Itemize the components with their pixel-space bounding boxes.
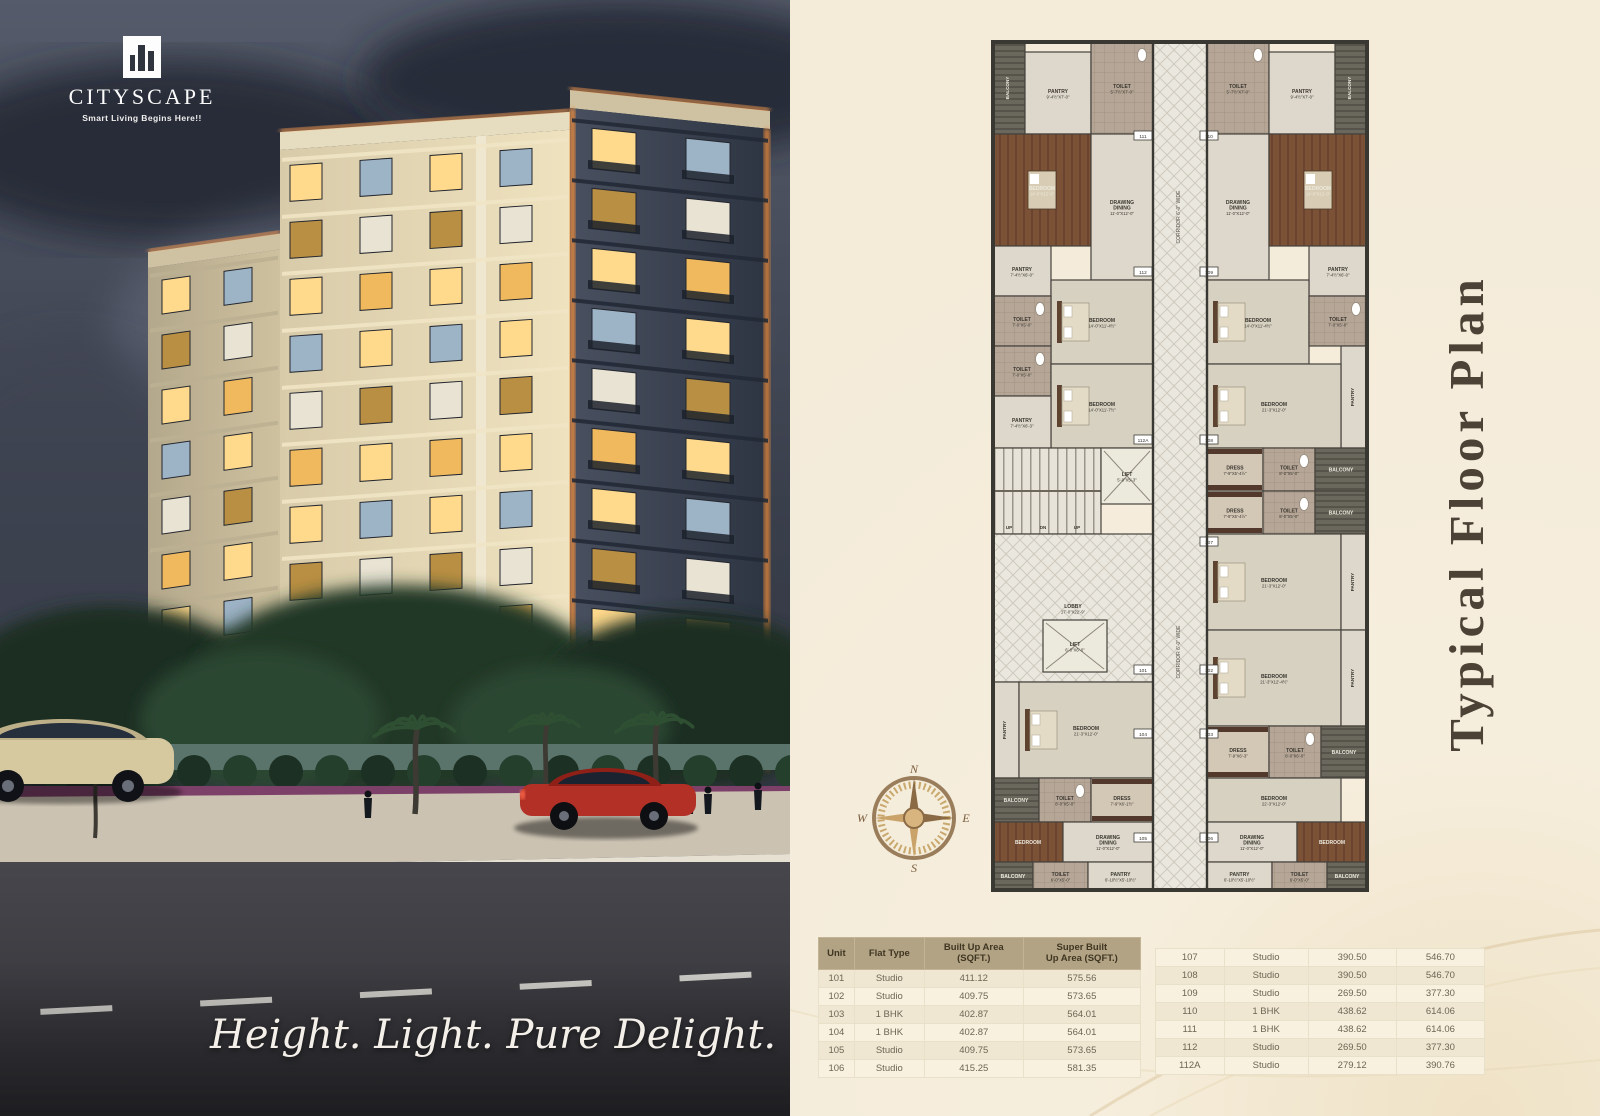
building-window	[290, 505, 322, 543]
brand-tagline: Smart Living Begins Here!!	[42, 113, 242, 123]
building-window	[500, 376, 532, 414]
table-row: 101Studio411.12575.56	[819, 969, 1141, 987]
building-window	[290, 448, 322, 486]
unit-area-table-left: UnitFlat TypeBuilt Up Area (SQFT.)Super …	[818, 937, 1141, 1078]
table-cell: 109	[1156, 985, 1225, 1003]
building-window	[290, 334, 322, 372]
building-window	[162, 496, 190, 534]
svg-text:BALCONY: BALCONY	[1332, 750, 1357, 756]
svg-text:104: 104	[1139, 732, 1147, 738]
building-window	[290, 277, 322, 315]
table-header: Flat Type	[854, 938, 924, 970]
svg-text:BEDROOM: BEDROOM	[1319, 840, 1345, 846]
table-cell: 564.01	[1023, 1005, 1140, 1023]
svg-text:PANTRY: PANTRY	[1350, 388, 1355, 406]
table-cell: 402.87	[924, 1005, 1023, 1023]
compass-s: S	[911, 861, 917, 874]
svg-text:6'-0"X5'-0": 6'-0"X5'-0"	[1290, 878, 1310, 883]
svg-text:UP: UP	[1074, 525, 1080, 530]
svg-text:7'-9"X6'-3": 7'-9"X6'-3"	[1228, 754, 1248, 759]
unit-area-table-right: 107Studio390.50546.70108Studio390.50546.…	[1155, 948, 1485, 1075]
svg-text:14'-0"X12'-0": 14'-0"X12'-0"	[1306, 192, 1331, 197]
svg-text:14'-0"X11'-4½": 14'-0"X11'-4½"	[1244, 324, 1272, 329]
brand-name: CITYSCAPE	[42, 84, 242, 110]
table-cell: 377.30	[1396, 985, 1484, 1003]
table-header: Built Up Area (SQFT.)	[924, 938, 1023, 970]
svg-text:BALCONY: BALCONY	[1001, 874, 1026, 880]
corridor-label: CORRIDOR 6'-0" WIDE	[1176, 625, 1182, 679]
table-cell: 411.12	[924, 969, 1023, 987]
table-cell: 546.70	[1396, 949, 1484, 967]
building-window	[360, 500, 392, 538]
building-window	[290, 391, 322, 429]
plan-title: Typical Floor Plan	[1438, 275, 1495, 752]
svg-text:14'-0"X11'-7½": 14'-0"X11'-7½"	[1088, 408, 1116, 413]
svg-text:UP: UP	[1006, 525, 1012, 530]
table-cell: 409.75	[924, 987, 1023, 1005]
brochure-page: CITYSCAPE Smart Living Begins Here!! Hei…	[0, 0, 1600, 1116]
building-window	[224, 322, 252, 360]
table-cell: Studio	[1224, 1057, 1308, 1075]
table-cell: 409.75	[924, 1041, 1023, 1059]
table-cell: Studio	[854, 1041, 924, 1059]
table-cell: Studio	[1224, 1039, 1308, 1057]
svg-text:7'-9"X5'-4½": 7'-9"X5'-4½"	[1224, 471, 1247, 476]
compass-n: N	[909, 762, 919, 776]
svg-text:11'-0"X12'-0": 11'-0"X12'-0"	[1240, 846, 1264, 851]
svg-text:111: 111	[1139, 134, 1147, 140]
building-window	[500, 148, 532, 186]
table-cell: 1 BHK	[1224, 1003, 1308, 1021]
svg-text:PANTRY: PANTRY	[1350, 573, 1355, 591]
cityscape-logo-icon	[123, 36, 161, 78]
svg-text:7'-0"X5'-0": 7'-0"X5'-0"	[1012, 323, 1032, 328]
building-night-scene	[0, 0, 790, 1116]
svg-text:22'-3"X12'-0": 22'-3"X12'-0"	[1262, 802, 1287, 807]
svg-text:7'-9"X6'-1½": 7'-9"X6'-1½"	[1111, 802, 1134, 807]
svg-text:8'-0"X5'-0": 8'-0"X5'-0"	[1279, 471, 1299, 476]
table-cell: 575.56	[1023, 969, 1140, 987]
svg-text:14'-0"X12'-0": 14'-0"X12'-0"	[1030, 192, 1055, 197]
table-row: 112Studio269.50377.30	[1156, 1039, 1485, 1057]
svg-text:101: 101	[1139, 668, 1147, 674]
table-cell: 102	[819, 987, 855, 1005]
building-window	[430, 324, 462, 362]
table-row: 112AStudio279.12390.76	[1156, 1057, 1485, 1075]
table-cell: Studio	[1224, 967, 1308, 985]
svg-text:7'-4½"X6'-0": 7'-4½"X6'-0"	[1011, 273, 1034, 278]
svg-text:9'-4½"X7'-0": 9'-4½"X7'-0"	[1291, 95, 1314, 100]
table-cell: 415.25	[924, 1059, 1023, 1077]
table-cell: 390.50	[1308, 967, 1396, 985]
table-cell: 438.62	[1308, 1003, 1396, 1021]
compass-rose: N S W E	[858, 762, 970, 874]
table-cell: 101	[819, 969, 855, 987]
svg-text:DN: DN	[1040, 525, 1047, 530]
building-window	[162, 331, 190, 369]
table-cell: 546.70	[1396, 967, 1484, 985]
building-window	[500, 205, 532, 243]
svg-text:5'-7½"X7'-0": 5'-7½"X7'-0"	[1227, 90, 1250, 95]
building-window	[224, 432, 252, 470]
building-window	[500, 547, 532, 585]
table-cell: 1 BHK	[854, 1005, 924, 1023]
table-cell: 112A	[1156, 1057, 1225, 1075]
table-cell: 1 BHK	[854, 1023, 924, 1041]
table-row: 105Studio409.75573.65	[819, 1041, 1141, 1059]
building-window	[224, 267, 252, 305]
building-window	[430, 495, 462, 533]
svg-text:6'-10½"X5'-10½": 6'-10½"X5'-10½"	[1105, 878, 1137, 883]
compass-w: W	[858, 811, 868, 825]
building-window	[500, 433, 532, 471]
table-cell: 112	[1156, 1039, 1225, 1057]
table-cell: Studio	[854, 969, 924, 987]
table-cell: 614.06	[1396, 1003, 1484, 1021]
table-row: 106Studio415.25581.35	[819, 1059, 1141, 1077]
table-row: 108Studio390.50546.70	[1156, 967, 1485, 985]
svg-text:7'-4½"X6'-0": 7'-4½"X6'-0"	[1327, 273, 1350, 278]
table-row: 109Studio269.50377.30	[1156, 985, 1485, 1003]
table-cell: Studio	[854, 1059, 924, 1077]
table-cell: 390.76	[1396, 1057, 1484, 1075]
table-cell: 614.06	[1396, 1021, 1484, 1039]
svg-text:11'-0"X12'-0": 11'-0"X12'-0"	[1096, 846, 1120, 851]
svg-text:BALCONY: BALCONY	[1335, 874, 1360, 880]
plan-room-stair: UPDNUP	[993, 448, 1101, 534]
table-cell: 104	[819, 1023, 855, 1041]
svg-text:11'-0"X12'-0": 11'-0"X12'-0"	[1226, 211, 1250, 216]
table-cell: 111	[1156, 1021, 1225, 1039]
building-window	[360, 386, 392, 424]
table-cell: 269.50	[1308, 985, 1396, 1003]
building-window	[430, 438, 462, 476]
building-window	[430, 552, 462, 590]
typical-floor-plan: BALCONYPANTRY9'-4½"X7'-0"TOILET5'-7½"X7'…	[985, 22, 1375, 894]
svg-text:PANTRY: PANTRY	[1350, 669, 1355, 687]
building-window	[290, 220, 322, 258]
table-cell: 106	[819, 1059, 855, 1077]
svg-text:6'-0"X6'-0": 6'-0"X6'-0"	[1065, 648, 1085, 653]
table-cell: 390.50	[1308, 949, 1396, 967]
svg-text:9'-4½"X7'-0": 9'-4½"X7'-0"	[1047, 95, 1070, 100]
building-render-panel: CITYSCAPE Smart Living Begins Here!! Hei…	[0, 0, 790, 1116]
building-window	[360, 329, 392, 367]
svg-text:8'-0"X5'-0": 8'-0"X5'-0"	[1055, 802, 1075, 807]
svg-text:BALCONY: BALCONY	[1005, 77, 1010, 100]
table-cell: 269.50	[1308, 1039, 1396, 1057]
table-cell: 402.87	[924, 1023, 1023, 1041]
pedestrian	[364, 791, 372, 819]
building-window	[224, 542, 252, 580]
svg-text:11'-0"X12'-0": 11'-0"X12'-0"	[1110, 211, 1134, 216]
table-cell: 573.65	[1023, 987, 1140, 1005]
svg-text:8'-0"X6'-0": 8'-0"X6'-0"	[1285, 754, 1305, 759]
table-cell: 105	[819, 1041, 855, 1059]
svg-text:17'-0"X22'-9": 17'-0"X22'-9"	[1061, 610, 1086, 615]
pedestrian	[754, 783, 762, 811]
table-cell: 564.01	[1023, 1023, 1140, 1041]
svg-text:PANTRY: PANTRY	[1002, 721, 1007, 739]
svg-text:7'-0"X5'-0": 7'-0"X5'-0"	[1012, 373, 1032, 378]
svg-text:21'-3"X12'-0": 21'-3"X12'-0"	[1074, 732, 1099, 737]
table-header: Unit	[819, 938, 855, 970]
building-window	[224, 487, 252, 525]
svg-text:21'-3"X12'-0": 21'-3"X12'-0"	[1262, 584, 1287, 589]
building-window	[360, 272, 392, 310]
table-header: Super Built Up Area (SQFT.)	[1023, 938, 1140, 970]
building-window	[500, 262, 532, 300]
building-window	[430, 153, 462, 191]
svg-text:112A: 112A	[1138, 438, 1150, 444]
svg-text:105: 105	[1139, 836, 1147, 842]
building-window	[430, 381, 462, 419]
building-window	[360, 215, 392, 253]
building-window	[162, 386, 190, 424]
svg-text:6'-10½"X5'-10½": 6'-10½"X5'-10½"	[1224, 878, 1256, 883]
table-cell: 107	[1156, 949, 1225, 967]
building-window	[290, 163, 322, 201]
table-cell: 573.65	[1023, 1041, 1140, 1059]
building-window	[430, 210, 462, 248]
building-window	[162, 441, 190, 479]
table-row: 1031 BHK402.87564.01	[819, 1005, 1141, 1023]
table-row: 1041 BHK402.87564.01	[819, 1023, 1141, 1041]
building-window	[162, 276, 190, 314]
table-cell: 581.35	[1023, 1059, 1140, 1077]
compass-e: E	[961, 811, 970, 825]
svg-text:7'-4½"X6'-3": 7'-4½"X6'-3"	[1011, 424, 1034, 429]
building-window	[430, 267, 462, 305]
svg-text:BALCONY: BALCONY	[1329, 511, 1354, 517]
building-window	[360, 158, 392, 196]
table-row: 1101 BHK438.62614.06	[1156, 1003, 1485, 1021]
building-window	[162, 551, 190, 589]
plan-room-corr	[1153, 42, 1207, 890]
table-cell: 377.30	[1396, 1039, 1484, 1057]
table-cell: 108	[1156, 967, 1225, 985]
svg-text:8'-0"X5'-0": 8'-0"X5'-0"	[1279, 514, 1299, 519]
building-window	[224, 377, 252, 415]
svg-text:BALCONY: BALCONY	[1347, 77, 1352, 100]
table-cell: Studio	[854, 987, 924, 1005]
table-row: 1111 BHK438.62614.06	[1156, 1021, 1485, 1039]
building-window	[360, 443, 392, 481]
table-cell: 438.62	[1308, 1021, 1396, 1039]
svg-text:7'-0"X5'-0": 7'-0"X5'-0"	[1328, 323, 1348, 328]
floorplan-panel: BALCONYPANTRY9'-4½"X7'-0"TOILET5'-7½"X7'…	[790, 0, 1600, 1116]
building-window	[500, 490, 532, 528]
svg-text:7'-9"X5'-4½": 7'-9"X5'-4½"	[1224, 514, 1247, 519]
brand-logo: CITYSCAPE Smart Living Begins Here!!	[42, 36, 242, 123]
svg-text:5'-7½"X7'-0": 5'-7½"X7'-0"	[1111, 90, 1134, 95]
svg-text:21'-3"X12'-0": 21'-3"X12'-0"	[1262, 408, 1287, 413]
table-cell: Studio	[1224, 949, 1308, 967]
svg-text:BALCONY: BALCONY	[1004, 798, 1029, 804]
svg-text:14'-0"X11'-4½": 14'-0"X11'-4½"	[1088, 324, 1116, 329]
table-row: 102Studio409.75573.65	[819, 987, 1141, 1005]
svg-text:112: 112	[1139, 270, 1147, 276]
corridor-label: CORRIDOR 6'-0" WIDE	[1176, 190, 1182, 244]
table-cell: 103	[819, 1005, 855, 1023]
table-cell: 1 BHK	[1224, 1021, 1308, 1039]
svg-text:BALCONY: BALCONY	[1329, 468, 1354, 474]
svg-text:6'-0"X5'-0": 6'-0"X5'-0"	[1051, 878, 1071, 883]
table-row: 107Studio390.50546.70	[1156, 949, 1485, 967]
pedestrian	[704, 787, 712, 815]
svg-text:BEDROOM: BEDROOM	[1015, 840, 1041, 846]
svg-text:5'-0"X5'-3": 5'-0"X5'-3"	[1117, 478, 1137, 483]
building-window	[500, 319, 532, 357]
svg-text:21'-3"X12'-4½": 21'-3"X12'-4½"	[1260, 680, 1288, 685]
table-cell: 110	[1156, 1003, 1225, 1021]
hero-slogan: Height. Light. Pure Delight.	[210, 1012, 770, 1058]
table-cell: 279.12	[1308, 1057, 1396, 1075]
table-cell: Studio	[1224, 985, 1308, 1003]
